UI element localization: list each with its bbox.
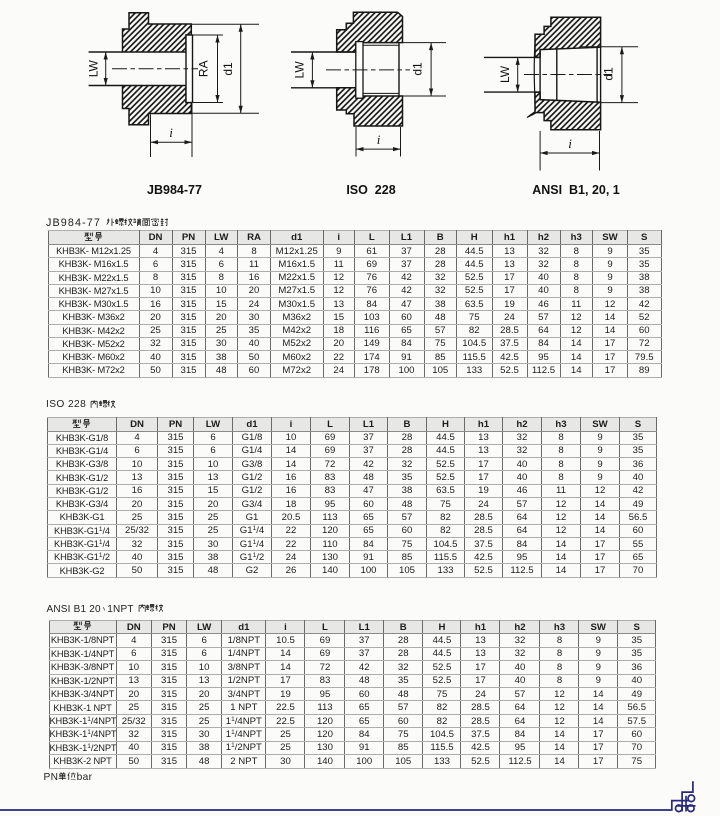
- svg-text:LW: LW: [87, 60, 101, 78]
- svg-text:d1: d1: [411, 62, 425, 76]
- svg-text:i: i: [169, 125, 173, 140]
- svg-text:JB984-77: JB984-77: [147, 183, 202, 197]
- svg-text:ISO 228: ISO 228: [346, 183, 395, 197]
- svg-text:LW: LW: [293, 61, 307, 79]
- svg-text:i: i: [568, 136, 572, 151]
- svg-text:i: i: [377, 132, 381, 147]
- svg-text:d1: d1: [602, 67, 616, 81]
- svg-text:RA: RA: [197, 60, 211, 77]
- svg-text:d1: d1: [221, 62, 235, 76]
- svg-text:LW: LW: [498, 65, 512, 83]
- svg-text:ANSI B1, 20, 1: ANSI B1, 20, 1: [532, 183, 620, 197]
